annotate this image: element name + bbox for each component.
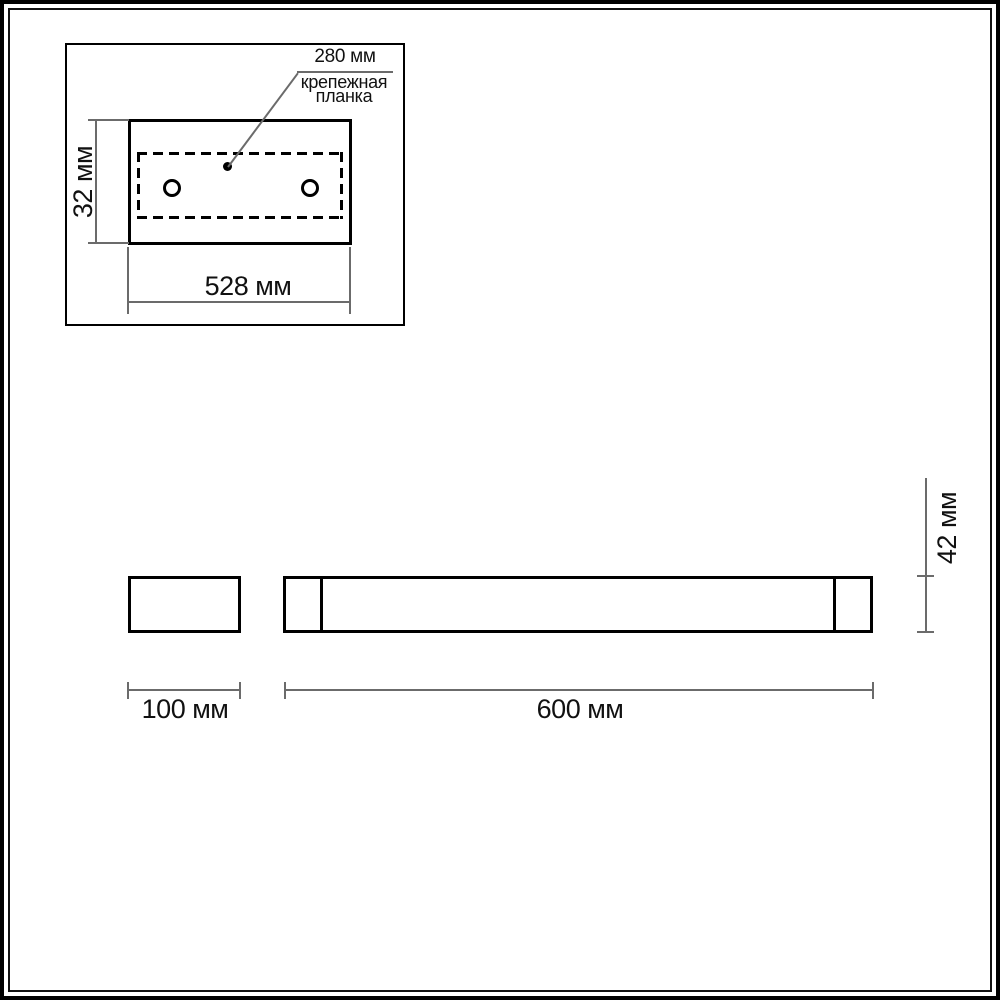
mounting-plate-dash-right [340,152,343,219]
tick-42-bottom [917,631,934,633]
front-view-outline [283,576,873,633]
width-528-label: 528 мм [148,272,348,300]
mounting-plate-dash-bottom [137,216,343,219]
side-view-outline [128,576,241,633]
ext-line-528-right [349,247,351,314]
backplate-outline [128,119,352,245]
mounting-plate-dash-left [137,152,140,219]
side-width-100-label: 100 мм [105,694,265,724]
front-length-600-label: 600 мм [480,694,680,724]
mounting-hole-right [301,179,319,197]
dim-line-600 [284,689,874,691]
dimension-drawing-page: 280 мм крепежная планка 32 мм 528 мм 100… [0,0,1000,1000]
front-height-42-label: 42 мм [932,468,962,588]
front-endcap-right [833,579,836,630]
ext-line-528-left [127,247,129,314]
dim-line-42 [925,478,927,633]
height-32-label: 32 мм [68,122,98,242]
plate-width-label: 280 мм [297,46,393,68]
mounting-hole-left [163,179,181,197]
front-endcap-left [320,579,323,630]
plate-name-label: крепежная планка [290,76,398,103]
dim-line-100 [128,689,241,691]
